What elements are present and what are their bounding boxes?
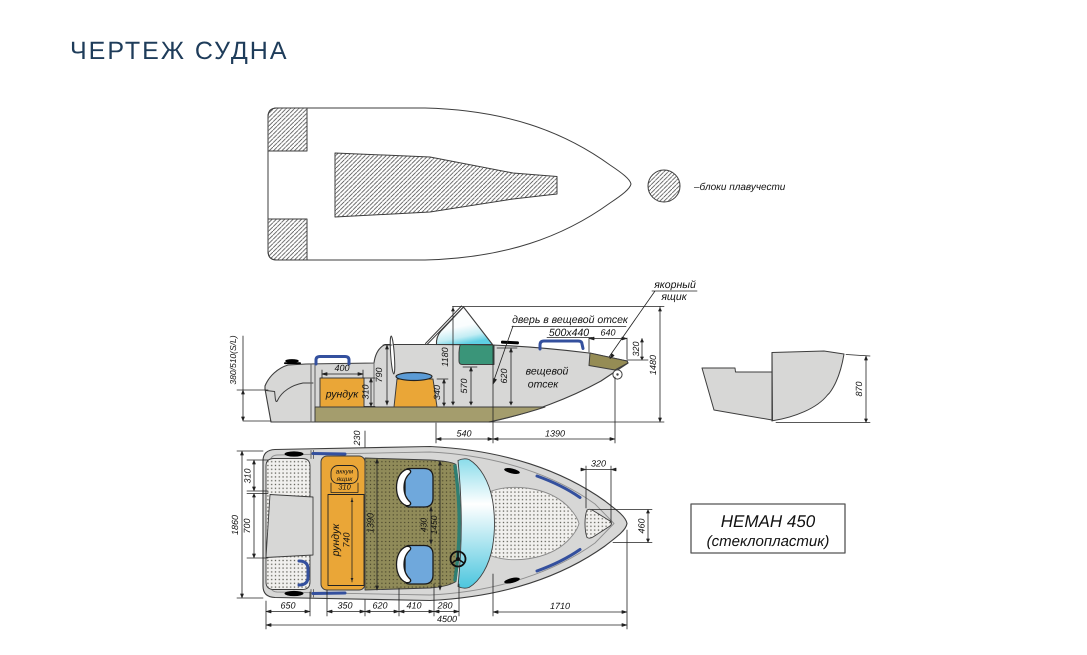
svg-text:320: 320	[631, 341, 641, 356]
svg-text:рундук: рундук	[325, 389, 359, 401]
svg-text:640: 640	[600, 328, 615, 338]
svg-text:540: 540	[456, 429, 471, 439]
svg-text:310: 310	[338, 483, 351, 492]
svg-text:1390: 1390	[366, 513, 376, 533]
svg-text:1860: 1860	[230, 515, 240, 535]
svg-text:230: 230	[352, 430, 362, 446]
svg-text:430: 430	[419, 518, 429, 532]
svg-text:1450: 1450	[429, 515, 439, 534]
svg-text:650: 650	[280, 601, 295, 611]
svg-text:620: 620	[372, 601, 387, 611]
svg-text:вещевой: вещевой	[526, 366, 569, 378]
svg-text:380/510(S/L): 380/510(S/L)	[228, 335, 238, 384]
svg-text:870: 870	[854, 381, 864, 396]
svg-text:400: 400	[334, 363, 349, 373]
svg-text:320: 320	[591, 459, 606, 469]
svg-text:350: 350	[337, 601, 352, 611]
svg-text:410: 410	[406, 601, 421, 611]
svg-text:500х440: 500х440	[549, 327, 589, 339]
svg-text:620: 620	[499, 368, 509, 383]
svg-text:740: 740	[342, 532, 352, 547]
svg-text:460: 460	[637, 518, 647, 533]
svg-text:570: 570	[459, 378, 469, 393]
svg-text:якорный: якорный	[653, 279, 696, 291]
svg-text:дверь в вещевой отсек: дверь в вещевой отсек	[512, 314, 629, 326]
svg-text:рундук: рундук	[330, 523, 342, 557]
svg-text:1390: 1390	[545, 429, 565, 439]
svg-text:1480: 1480	[648, 355, 658, 375]
svg-text:–блоки плавучести: –блоки плавучести	[693, 182, 786, 193]
svg-text:отсек: отсек	[528, 379, 560, 391]
svg-text:1710: 1710	[550, 601, 570, 611]
svg-text:1180: 1180	[440, 347, 450, 366]
svg-text:310: 310	[361, 384, 371, 399]
svg-text:280: 280	[436, 601, 452, 611]
svg-text:310: 310	[243, 468, 253, 483]
svg-text:4500: 4500	[437, 614, 457, 624]
svg-text:аккум: аккум	[336, 469, 354, 476]
svg-text:790: 790	[374, 367, 384, 382]
svg-text:(стеклопластик): (стеклопластик)	[707, 533, 830, 550]
svg-text:700: 700	[242, 518, 252, 533]
svg-text:340: 340	[432, 385, 442, 400]
svg-text:ящик: ящик	[660, 291, 687, 303]
svg-text:НЕМАН 450: НЕМАН 450	[721, 512, 816, 531]
